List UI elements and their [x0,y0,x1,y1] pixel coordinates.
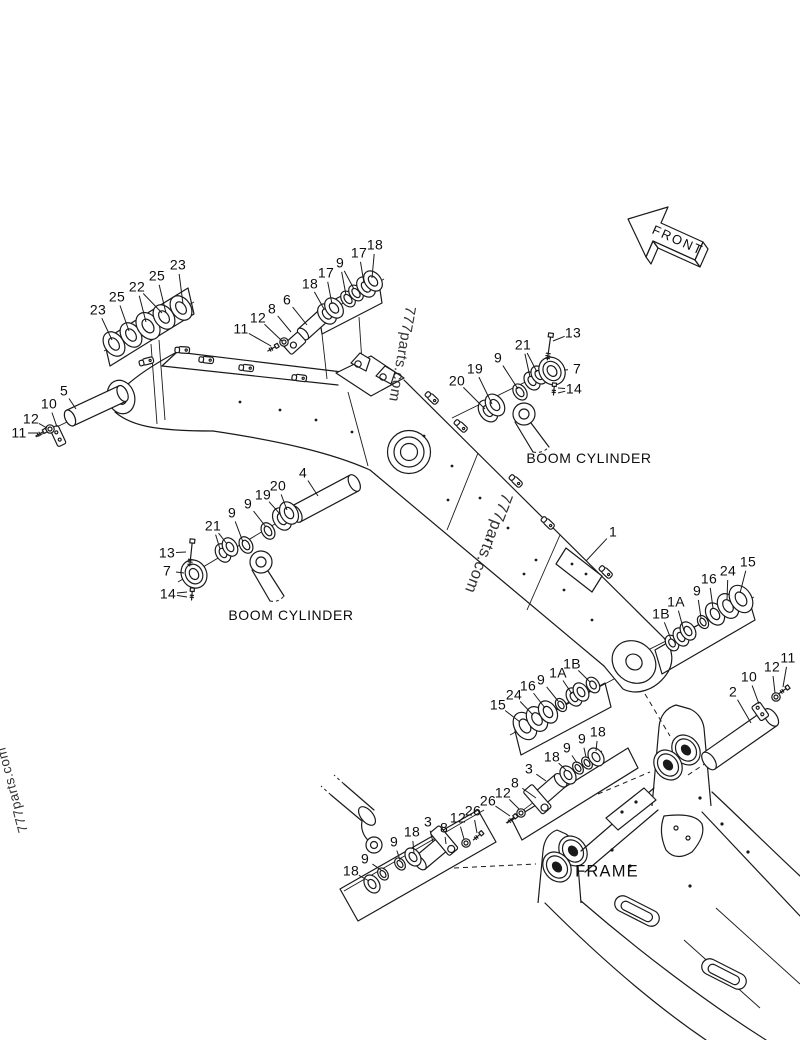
pin-2 [699,706,782,772]
seal-stack-pin3-right [557,745,608,787]
frame-slot [612,893,662,929]
bolt-11 [778,685,790,695]
boom-cylinder-ghost-upper [513,403,549,452]
boom-weldment [103,346,672,692]
parts-diagram-page: FRONT BOOM CYLINDERBOOM CYLINDERFRAME777… [0,0,800,1040]
boom-foot-boss [604,632,665,692]
boom-cylinder-ghost-lower [250,551,284,601]
foot-ring-stack-right [662,581,757,653]
washer-12 [280,338,288,346]
bolt-26 [472,831,484,842]
washer-12 [462,839,470,847]
washer-12 [772,693,780,701]
washer-12 [517,809,525,817]
foot-ring-stack-left [508,675,602,744]
cylinder-rod-ghost-bottom [321,775,382,853]
frame-slot [699,956,749,992]
exploded-view-drawing [0,0,800,1040]
bushing-group-lower-cylinder [176,498,302,600]
ring-stack-top [314,267,386,328]
frame-weldment [537,705,800,1040]
bolt-26 [506,814,518,825]
backing-panels [104,277,755,921]
front-arrow [628,207,708,267]
